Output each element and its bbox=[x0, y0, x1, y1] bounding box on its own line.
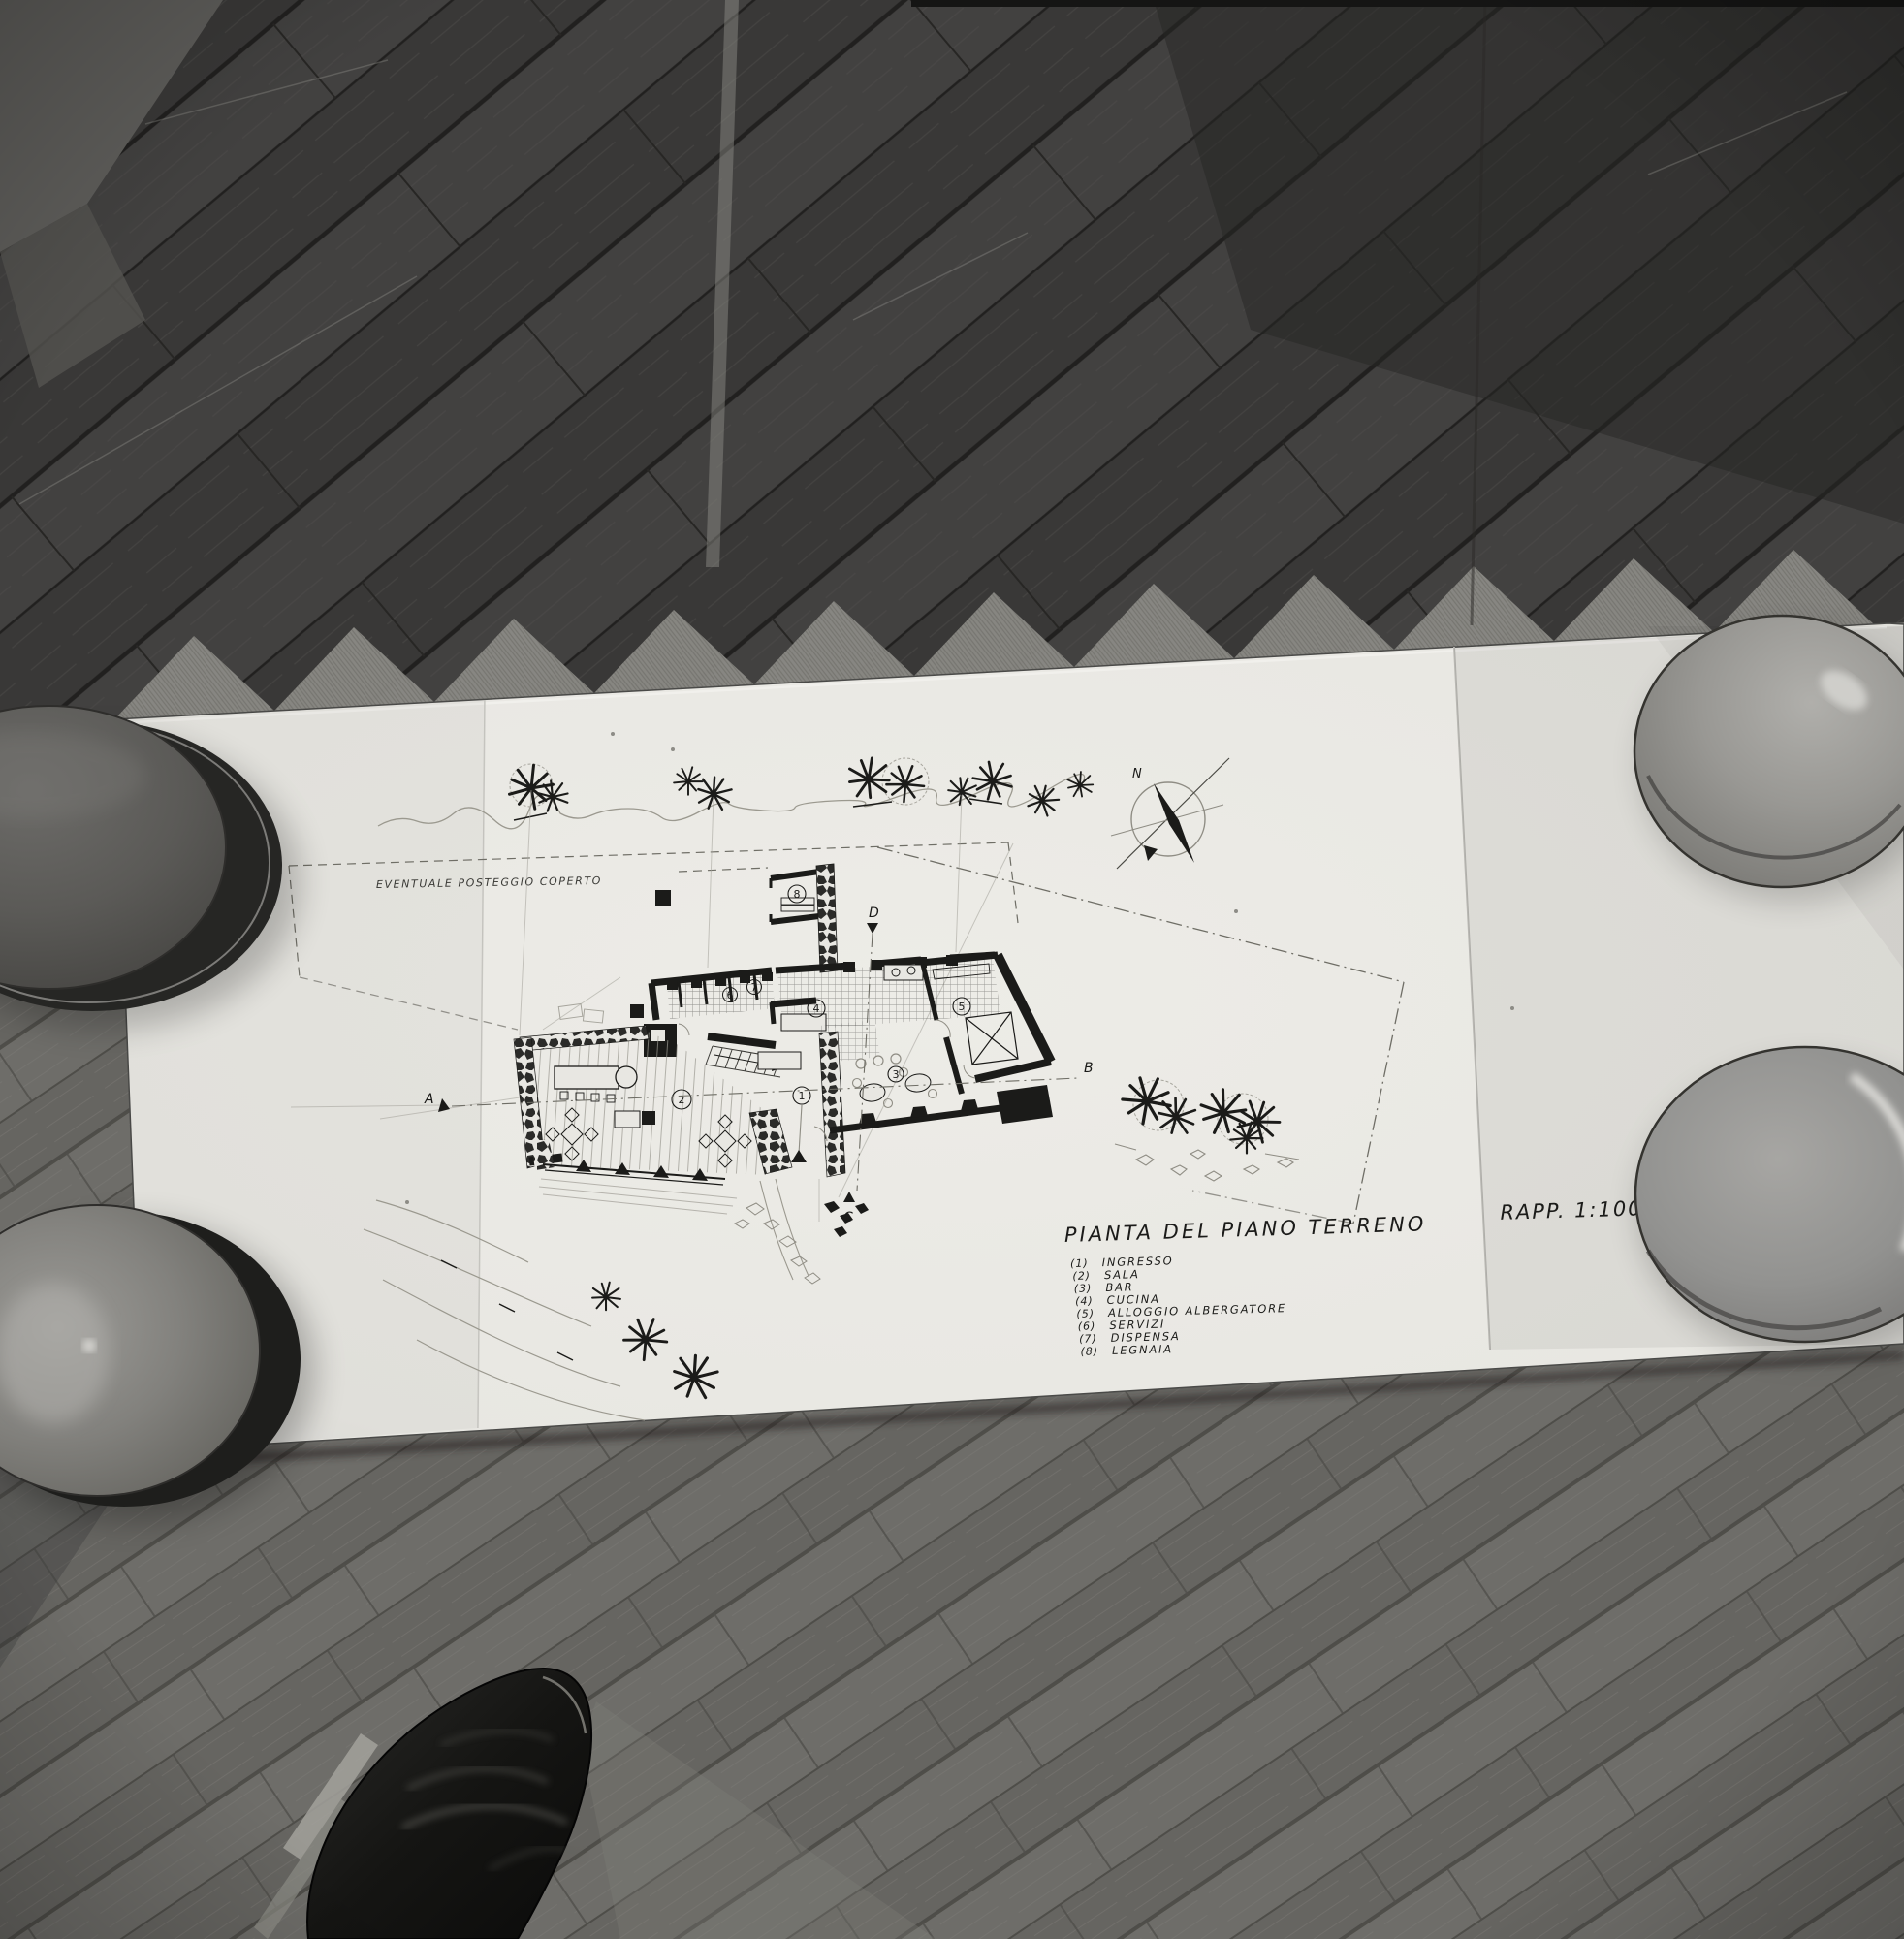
vignette-overlay bbox=[0, 0, 1904, 1939]
photo-floor-plan-scene: EVENTUALE POSTEGGIO COPERTO N bbox=[0, 0, 1904, 1939]
photo-canvas: EVENTUALE POSTEGGIO COPERTO N bbox=[0, 0, 1904, 1939]
